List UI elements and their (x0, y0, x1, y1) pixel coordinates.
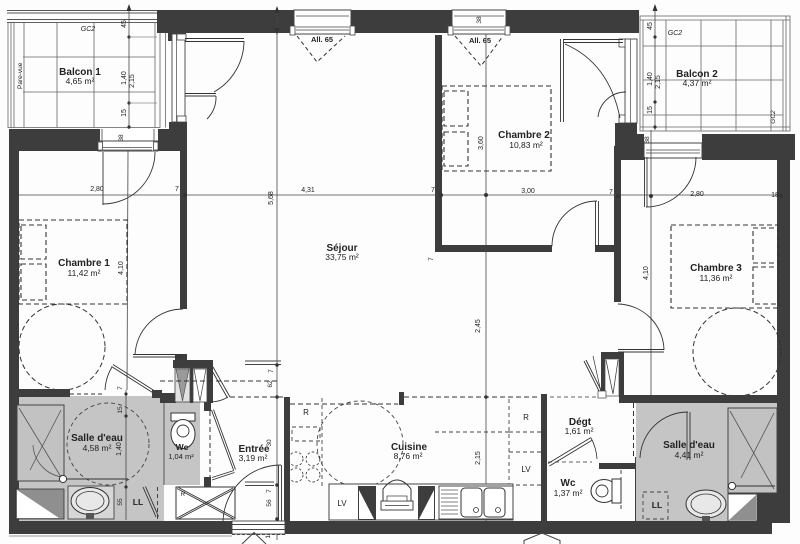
svg-text:15: 15 (647, 106, 654, 114)
svg-text:LL: LL (652, 500, 662, 510)
svg-text:4,41 m²: 4,41 m² (675, 450, 704, 460)
svg-text:8,76 m²: 8,76 m² (394, 451, 423, 461)
svg-text:38: 38 (644, 136, 651, 144)
svg-text:All. 65: All. 65 (469, 36, 491, 45)
svg-text:Wc: Wc (176, 442, 189, 452)
svg-text:4,58 m²: 4,58 m² (83, 443, 112, 453)
svg-text:7: 7 (431, 187, 435, 194)
svg-text:GC2: GC2 (770, 110, 777, 124)
svg-text:2,15: 2,15 (655, 75, 662, 89)
svg-text:4,65 m²: 4,65 m² (66, 76, 95, 86)
svg-text:LV: LV (337, 499, 347, 508)
svg-text:2,15: 2,15 (129, 74, 136, 88)
svg-text:56: 56 (266, 499, 273, 507)
svg-text:7: 7 (268, 369, 275, 373)
svg-text:3,00: 3,00 (521, 188, 535, 195)
svg-text:1,04 m²: 1,04 m² (168, 452, 194, 461)
svg-text:15: 15 (121, 109, 128, 117)
svg-text:1,40: 1,40 (647, 72, 654, 86)
svg-text:38: 38 (118, 134, 125, 142)
svg-text:33,75 m²: 33,75 m² (325, 252, 359, 262)
svg-text:3,19 m²: 3,19 m² (239, 453, 268, 463)
svg-text:R: R (523, 413, 529, 422)
svg-text:4,31: 4,31 (301, 187, 315, 194)
svg-text:11,42 m²: 11,42 m² (68, 268, 101, 278)
svg-text:R: R (303, 408, 309, 417)
svg-text:2,80: 2,80 (690, 191, 704, 198)
svg-text:GC2: GC2 (668, 30, 683, 37)
svg-text:1,40: 1,40 (121, 71, 128, 85)
svg-text:11,36 m²: 11,36 m² (700, 273, 733, 283)
svg-text:18: 18 (771, 192, 779, 199)
svg-text:4,10: 4,10 (118, 261, 125, 275)
svg-text:3,60: 3,60 (478, 136, 485, 150)
svg-text:Pare-vue: Pare-vue (17, 62, 24, 89)
svg-text:All. 65: All. 65 (311, 35, 333, 44)
svg-text:5,68: 5,68 (268, 191, 275, 205)
svg-text:15: 15 (117, 406, 124, 414)
svg-text:4,10: 4,10 (643, 266, 650, 280)
svg-text:7: 7 (117, 386, 124, 390)
svg-text:LV: LV (521, 465, 531, 474)
svg-text:45: 45 (647, 22, 654, 30)
svg-text:LL: LL (133, 497, 143, 507)
svg-text:45: 45 (121, 20, 128, 28)
svg-text:7: 7 (609, 189, 613, 196)
svg-text:2,80: 2,80 (90, 186, 104, 193)
svg-text:7: 7 (175, 186, 179, 193)
svg-text:1,37 m²: 1,37 m² (554, 488, 583, 498)
svg-text:55: 55 (117, 498, 124, 506)
svg-text:R: R (181, 491, 186, 498)
svg-text:GC2: GC2 (81, 26, 96, 33)
svg-text:38: 38 (476, 16, 483, 24)
svg-text:10,83 m²: 10,83 m² (509, 140, 543, 150)
svg-text:1,61 m²: 1,61 m² (565, 426, 594, 436)
svg-text:4,37 m²: 4,37 m² (683, 78, 712, 88)
svg-text:1,40: 1,40 (116, 442, 123, 456)
svg-text:2,45: 2,45 (475, 319, 482, 333)
svg-text:7: 7 (266, 489, 273, 493)
svg-text:7: 7 (428, 257, 435, 261)
svg-text:2,15: 2,15 (475, 451, 482, 465)
